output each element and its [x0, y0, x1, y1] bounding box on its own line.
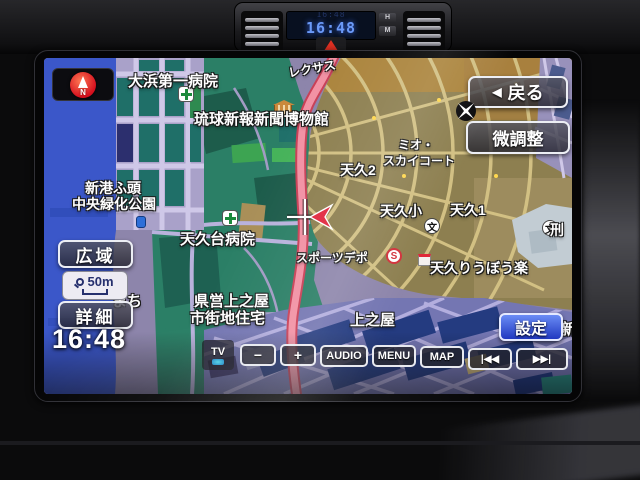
map-label: 中央緑化公園 — [72, 194, 156, 214]
audio-button[interactable]: AUDIO — [320, 345, 368, 367]
left-vent — [241, 11, 283, 53]
map-label: 天久1 — [450, 200, 486, 220]
dash-seam — [0, 441, 640, 445]
car-dashboard-photo: 16:48 16:48 H M — [0, 0, 640, 480]
tv-signal-icon — [212, 359, 224, 365]
compass-widget[interactable]: N — [52, 68, 114, 101]
clock-hour-button[interactable]: H — [379, 13, 396, 23]
hospital-icon — [222, 210, 238, 226]
wide-area-button[interactable]: 広域 — [58, 240, 133, 268]
map-scale-indicator[interactable]: 50m — [62, 271, 128, 300]
dash-clock-display: 16:48 16:48 — [286, 11, 376, 40]
dashboard-top: 16:48 16:48 H M — [0, 0, 640, 54]
store-s-icon: S — [386, 248, 402, 264]
fine-adjust-button[interactable]: 微調整 — [466, 121, 570, 154]
map-label: 琉球新報新聞博物館 — [194, 108, 329, 129]
map-label: スカイコート — [383, 152, 455, 169]
interior-reflection — [582, 100, 640, 400]
prev-track-button[interactable]: |◀◀ — [468, 348, 512, 370]
zoom-magnifier-icon — [76, 278, 84, 286]
school-icon: 文 — [424, 218, 440, 234]
map-label: 大浜第一病院 — [128, 70, 218, 91]
settings-button[interactable]: 設定 — [499, 313, 563, 341]
map-label: ミオ・ — [398, 136, 434, 153]
scale-value: 50m — [87, 276, 113, 288]
dash-clock-reflection: 16:48 — [316, 11, 345, 19]
scale-bracket — [82, 289, 108, 295]
tv-button[interactable]: TV — [202, 340, 234, 370]
park-facility-icon — [136, 216, 146, 228]
back-arrow-icon: ◀ — [492, 85, 501, 99]
compass-north-icon: N — [70, 72, 96, 98]
map-button[interactable]: MAP — [420, 346, 464, 368]
map-label: 刑 — [550, 220, 564, 240]
next-track-button[interactable]: ▶▶| — [516, 348, 568, 370]
map-label: スポーツデポ — [296, 249, 368, 266]
clock-minute-button[interactable]: M — [379, 26, 396, 36]
hazard-triangle-icon — [324, 40, 338, 51]
map-label: 天久小 — [380, 201, 422, 221]
zoom-out-button[interactable]: − — [240, 344, 276, 366]
map-label: 天久台病院 — [180, 228, 255, 249]
right-vent — [403, 11, 445, 53]
nav-clock: 16:48 — [52, 324, 126, 355]
scroll-origin-icon — [455, 100, 477, 122]
menu-button[interactable]: MENU — [372, 345, 416, 367]
dash-clock-time: 16:48 — [306, 19, 356, 39]
map-label: 上之屋 — [350, 309, 395, 330]
back-button[interactable]: ◀ 戻る — [468, 76, 568, 108]
map-label: 天久2 — [340, 160, 376, 180]
map-label: 市街地住宅 — [190, 307, 265, 328]
zoom-in-button[interactable]: + — [280, 344, 316, 366]
map-label: 天久りうぼう楽 — [430, 258, 528, 278]
